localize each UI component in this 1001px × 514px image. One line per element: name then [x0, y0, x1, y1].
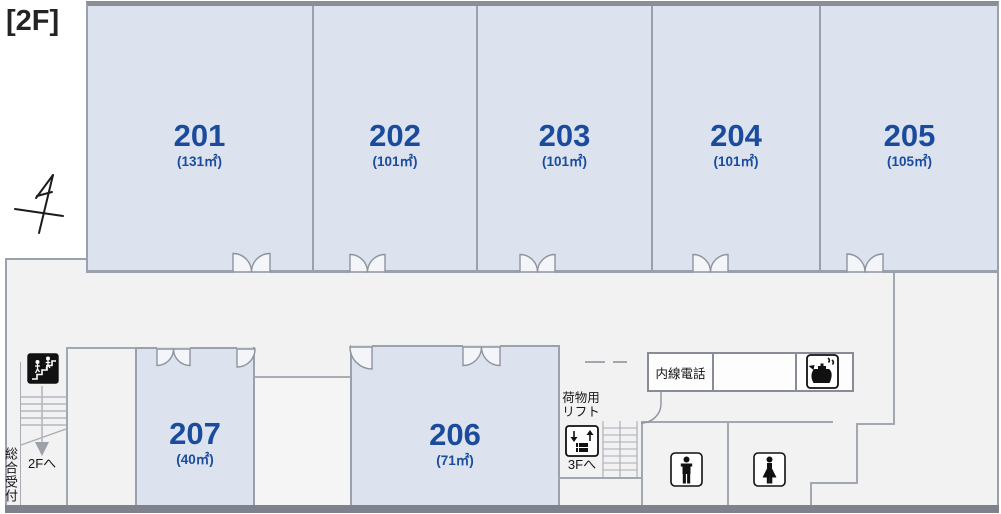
north-arrow-icon	[15, 175, 63, 233]
kettle-icon	[806, 354, 839, 389]
cargo-lift-label: 荷物用 リフト	[556, 391, 606, 420]
stairs-icon	[27, 353, 59, 384]
to-3f-label: 3Fへ	[560, 458, 604, 473]
plan-linework	[0, 0, 1001, 514]
mens-restroom-icon	[670, 452, 703, 487]
reception-label: 総合受付	[2, 447, 17, 503]
cargo-lift-label-line1: 荷物用	[562, 391, 600, 405]
cargo-lift-icon	[565, 425, 599, 457]
floor-plan-2f: [2F] 内線電話	[0, 0, 1001, 514]
to-2f-label: 2Fへ	[28, 457, 56, 472]
cargo-lift-label-line2: リフト	[562, 405, 600, 419]
womens-restroom-icon	[753, 452, 786, 487]
